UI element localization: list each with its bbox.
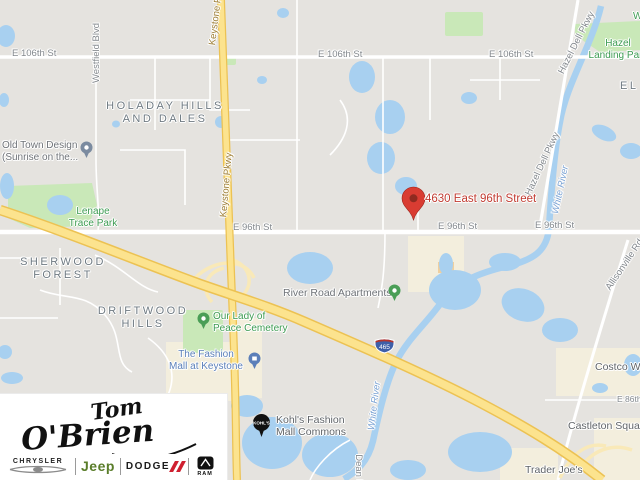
kohls-logo-icon[interactable]: KOHL'S xyxy=(252,413,271,438)
poi-label-fragment-top-right: W xyxy=(633,11,640,23)
street-label-e86th: E 86th St xyxy=(617,393,640,405)
poi-label-hazel-landing-park[interactable]: Hazel Landing Park xyxy=(587,38,640,61)
interstate-465-shield-icon: 465 xyxy=(373,336,396,354)
street-label-e106th-1: E 106th St xyxy=(12,48,56,60)
shopping-pin-icon[interactable] xyxy=(248,352,261,369)
poi-label-trader-joes[interactable]: Trader Joe's xyxy=(525,464,583,476)
dodge-logo: DODGE xyxy=(126,461,183,472)
street-label-westfield-blvd: Westfield Blvd xyxy=(91,9,103,97)
poi-kohls-line2: Mall Commons xyxy=(276,426,346,438)
street-label-dean-rd: Dean Rd xyxy=(352,451,364,480)
street-label-e106th-3: E 106th St xyxy=(489,49,533,61)
street-label-e106th-2: E 106th St xyxy=(318,49,362,61)
ram-wordmark: RAM xyxy=(197,471,213,477)
destination-address-label[interactable]: 4630 East 96th Street xyxy=(425,193,536,205)
poi-label-castleton-square[interactable]: Castleton Square xyxy=(568,420,640,432)
dodge-wordmark: DODGE xyxy=(126,461,170,472)
svg-text:KOHL'S: KOHL'S xyxy=(253,421,270,426)
neighborhood-sherwood-line1: SHERWOOD xyxy=(10,256,116,269)
neighborhood-holaday-line2: AND DALES xyxy=(86,113,244,126)
jeep-logo: Jeep xyxy=(81,458,115,474)
poi-old-town-line1: Old Town Design xyxy=(2,140,78,152)
poi-label-old-town-design[interactable]: Old Town Design (Sunrise on the... xyxy=(2,140,78,163)
poi-label-costco[interactable]: Costco Wholesale xyxy=(595,361,640,373)
chrysler-wordmark: CHRYSLER xyxy=(13,458,63,465)
ram-logo: RAM xyxy=(194,456,216,477)
brand-divider xyxy=(75,458,76,475)
poi-kohls-line1: Kohl's Fashion xyxy=(276,414,346,426)
poi-lenape-line1: Lenape xyxy=(58,206,128,218)
street-label-e96th-1: E 96th St xyxy=(233,222,272,234)
dealer-script-logo: Tom O'Brien xyxy=(0,394,228,454)
poi-label-river-road-apartments[interactable]: River Road Apartments xyxy=(283,288,392,300)
neighborhood-label-driftwood: DRIFTWOOD HILLS xyxy=(80,305,206,331)
destination-marker-icon[interactable] xyxy=(401,186,426,221)
poi-old-town-line2: (Sunrise on the... xyxy=(2,152,78,164)
neighborhood-label-fragment-right: EL xyxy=(620,80,638,93)
neighborhood-label-holaday: HOLADAY HILLS AND DALES xyxy=(86,100,244,126)
street-label-e96th-2: E 96th St xyxy=(438,221,477,233)
neighborhood-holaday-line1: HOLADAY HILLS xyxy=(86,100,244,113)
poi-label-lenape-trace-park[interactable]: Lenape Trace Park xyxy=(58,206,128,229)
poi-lenape-line2: Trace Park xyxy=(58,218,128,230)
generic-poi-pin-icon[interactable] xyxy=(80,141,93,158)
neighborhood-driftwood-line2: HILLS xyxy=(80,318,206,331)
street-label-e96th-3: E 96th St xyxy=(535,220,574,232)
svg-text:465: 465 xyxy=(379,344,390,351)
poi-fashion-mall-line1: The Fashion xyxy=(166,349,246,361)
poi-label-kohls[interactable]: Kohl's Fashion Mall Commons xyxy=(276,414,346,438)
dealer-logo-panel: Tom O'Brien CHRYSLER Jeep DODGE xyxy=(0,393,228,480)
poi-label-our-lady-of-peace[interactable]: Our Lady of Peace Cemetery xyxy=(213,311,287,334)
neighborhood-driftwood-line1: DRIFTWOOD xyxy=(80,305,206,318)
neighborhood-label-sherwood: SHERWOOD FOREST xyxy=(10,256,116,282)
chrysler-wings-icon xyxy=(8,465,68,474)
brand-divider xyxy=(188,458,189,475)
brand-logos-row: CHRYSLER Jeep DODGE xyxy=(6,454,222,478)
ram-head-icon xyxy=(197,456,214,470)
dealer-name-line2: O'Brien xyxy=(20,413,155,454)
apartments-pin-icon[interactable] xyxy=(388,284,401,301)
poi-fashion-mall-line2: Mall at Keystone xyxy=(166,361,246,373)
poi-hazel-landing-line1: Hazel xyxy=(587,38,640,50)
neighborhood-sherwood-line2: FOREST xyxy=(10,269,116,282)
cemetery-pin-icon[interactable] xyxy=(197,312,210,329)
chrysler-logo: CHRYSLER xyxy=(6,458,70,474)
brand-divider xyxy=(120,458,121,475)
poi-our-lady-line2: Peace Cemetery xyxy=(213,323,287,335)
poi-hazel-landing-line2: Landing Park xyxy=(587,50,640,62)
map-canvas[interactable]: 465 E 106th St E 106th St E 106th St E 9… xyxy=(0,0,640,480)
poi-label-fashion-mall[interactable]: The Fashion Mall at Keystone xyxy=(166,349,246,372)
poi-our-lady-line1: Our Lady of xyxy=(213,311,287,323)
